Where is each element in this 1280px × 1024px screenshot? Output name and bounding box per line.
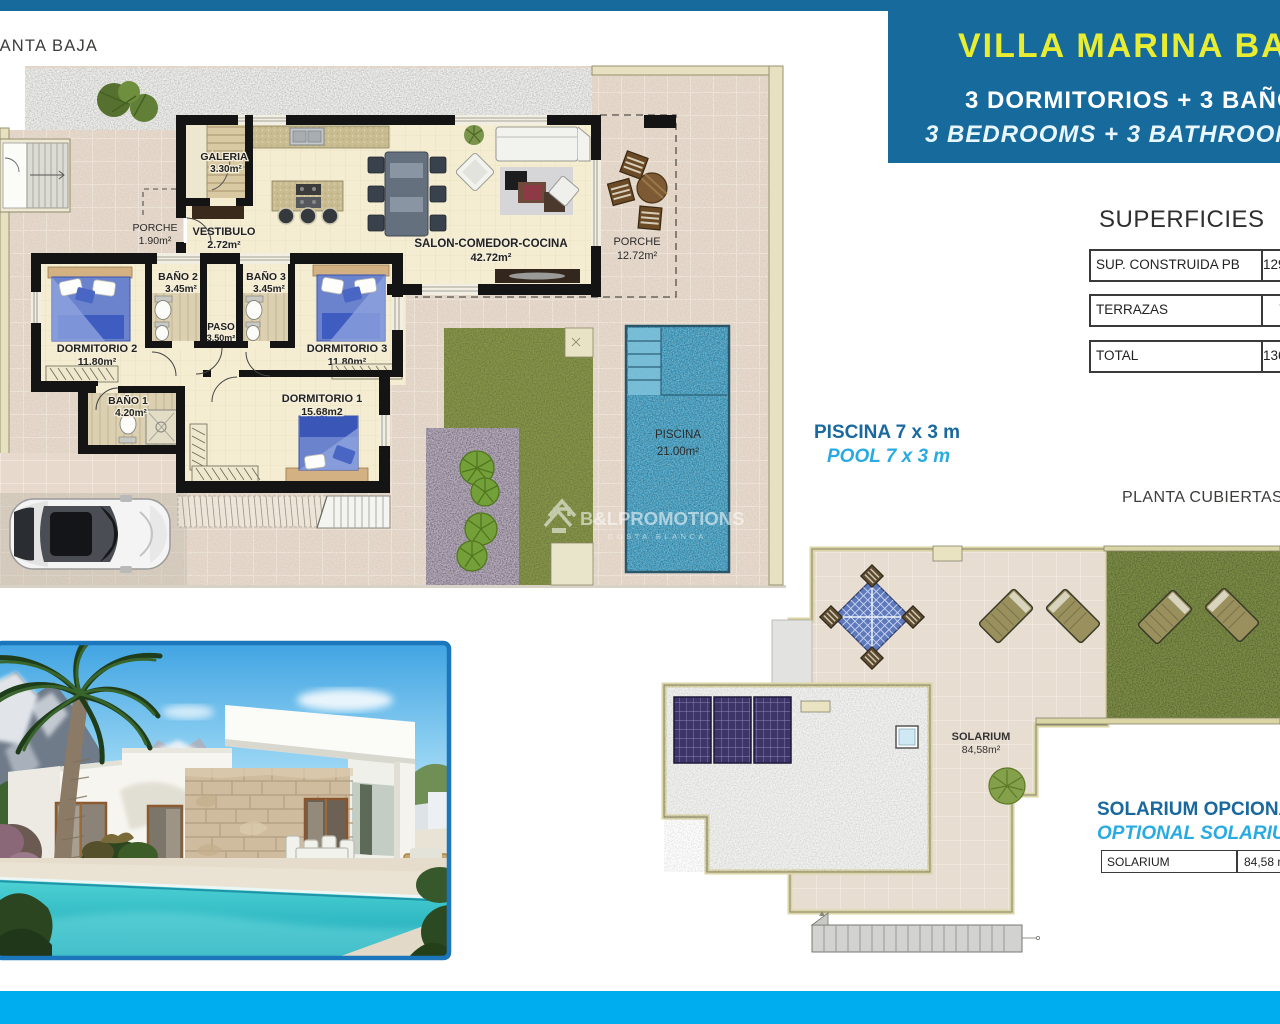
svg-text:DORMITORIO 3: DORMITORIO 3 [307, 343, 387, 355]
svg-text:3.45m²: 3.45m² [165, 284, 197, 295]
svg-text:84,58m²: 84,58m² [962, 744, 1001, 756]
svg-text:SOLARIUM: SOLARIUM [952, 731, 1011, 743]
svg-text:PORCHE: PORCHE [613, 236, 660, 248]
svg-text:BAÑO 2: BAÑO 2 [158, 270, 198, 283]
svg-text:PASO: PASO [207, 322, 235, 333]
svg-text:B&LPROMOTIONS: B&LPROMOTIONS [580, 508, 744, 529]
svg-text:21.00m²: 21.00m² [657, 446, 699, 458]
svg-text:DORMITORIO 2: DORMITORIO 2 [57, 343, 137, 355]
svg-text:42.72m²: 42.72m² [471, 252, 512, 264]
svg-text:15.68m2: 15.68m2 [301, 406, 343, 418]
svg-text:3.45m²: 3.45m² [253, 284, 285, 295]
svg-text:3.30m²: 3.30m² [210, 164, 242, 175]
svg-text:2.72m²: 2.72m² [207, 239, 241, 251]
svg-text:SALON-COMEDOR-COCINA: SALON-COMEDOR-COCINA [414, 238, 567, 250]
svg-text:1.90m²: 1.90m² [139, 235, 172, 247]
svg-text:BAÑO 3: BAÑO 3 [246, 270, 286, 283]
svg-text:DORMITORIO 1: DORMITORIO 1 [282, 393, 362, 405]
svg-text:PISCINA: PISCINA [655, 429, 701, 441]
svg-text:PORCHE: PORCHE [133, 222, 178, 234]
svg-text:VESTIBULO: VESTIBULO [193, 226, 256, 238]
svg-text:GALERIA: GALERIA [200, 151, 248, 163]
svg-text:4.20m²: 4.20m² [115, 408, 147, 419]
svg-text:BAÑO 1: BAÑO 1 [108, 394, 148, 407]
svg-text:12.72m²: 12.72m² [617, 250, 658, 262]
